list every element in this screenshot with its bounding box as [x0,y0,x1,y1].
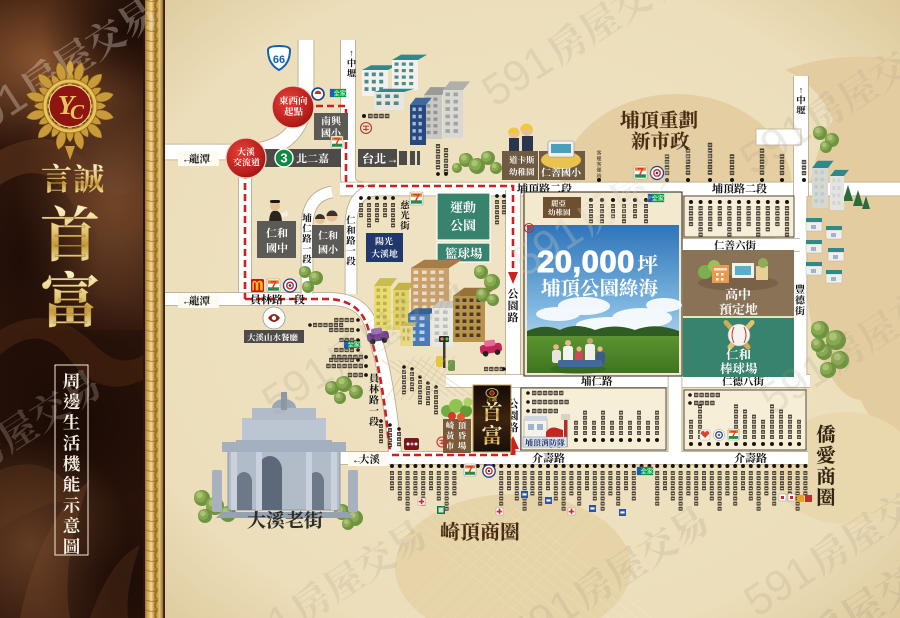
svg-text:全家: 全家 [334,90,346,98]
svg-text:7: 7 [270,278,277,292]
svg-text:7: 7 [731,430,737,441]
svg-text:66: 66 [273,54,285,66]
svg-text:3: 3 [280,151,287,166]
svg-text:↑: ↑ [799,85,804,95]
svg-text:C: C [70,100,85,124]
svg-text:←: ← [352,455,362,466]
svg-text:全家: 全家 [652,195,664,203]
svg-text:7: 7 [334,137,340,149]
svg-text:全家: 全家 [641,468,653,476]
svg-text:↑: ↑ [349,48,354,58]
svg-text:→: → [387,152,399,166]
svg-text:7: 7 [467,465,473,477]
svg-text:7: 7 [413,191,420,205]
